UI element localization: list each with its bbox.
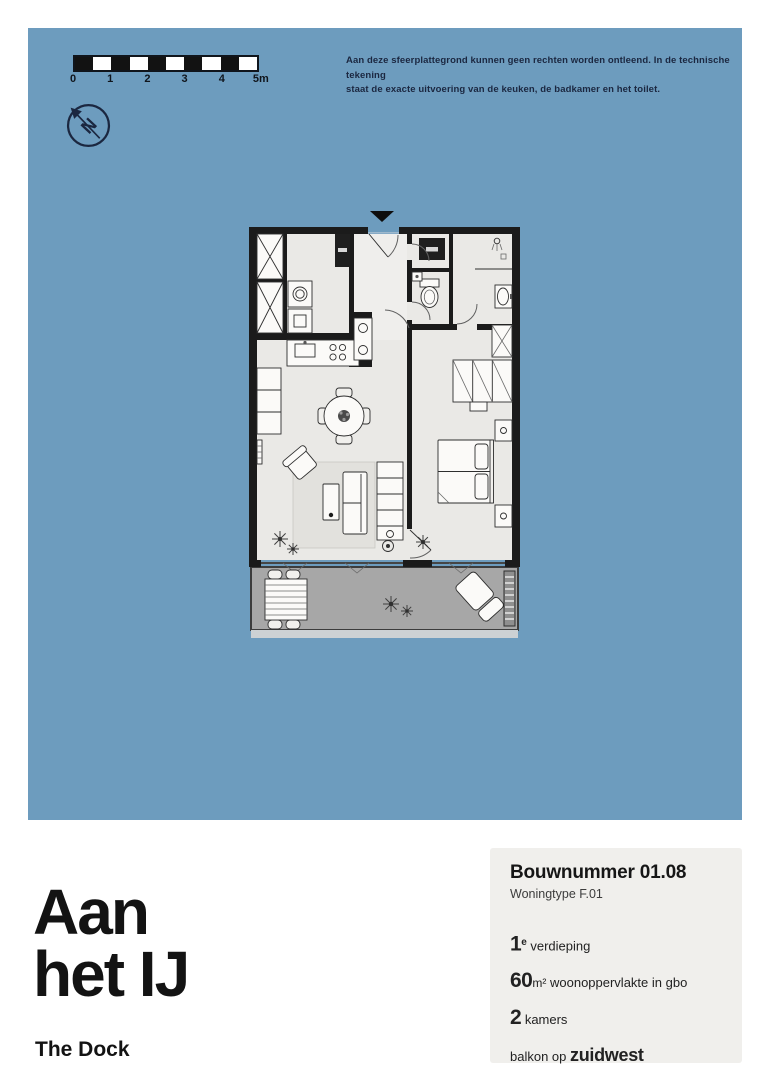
woningtype-label: Woningtype F.01 xyxy=(510,887,722,901)
scale-label: 0 xyxy=(70,73,76,85)
scale-segment xyxy=(93,57,111,70)
privacy-screen xyxy=(504,571,515,626)
coffee-table xyxy=(323,484,339,520)
balcony-row: balkon op zuidwest xyxy=(510,1043,722,1069)
washing-machine-icon xyxy=(288,281,312,307)
bouwnummer-heading: Bouwnummer 01.08 xyxy=(510,862,722,884)
area-number: 60 xyxy=(510,969,532,992)
floor-label: verdieping xyxy=(530,938,590,953)
meter-closets xyxy=(257,234,283,333)
scale-segment xyxy=(111,57,129,70)
scale-label: 5m xyxy=(253,73,269,85)
area-label: woonoppervlakte in gbo xyxy=(550,975,687,990)
disclaimer-line-2: staat de exacte uitvoering van de keuken… xyxy=(346,83,746,98)
scale-label: 4 xyxy=(219,73,225,85)
plant-icon xyxy=(272,531,288,547)
scale-segment xyxy=(166,57,184,70)
floor-row: 1e verdieping xyxy=(510,931,722,958)
north-compass-icon: N xyxy=(65,102,112,149)
rooms-number: 2 xyxy=(510,1006,521,1029)
floor-number: 1 xyxy=(510,932,521,955)
floorplan-drawing xyxy=(249,208,520,639)
rooms-label: kamers xyxy=(525,1012,568,1027)
blue-panel: 0 1 2 3 4 5m N Aan deze sfeerplattegrond… xyxy=(28,28,742,820)
scale-segment xyxy=(130,57,148,70)
scale-segment xyxy=(184,57,202,70)
floorplan-poster: 0 1 2 3 4 5m N Aan deze sfeerplattegrond… xyxy=(0,0,772,1092)
area-unit: m² xyxy=(532,976,546,990)
balcony-prefix: balkon op xyxy=(510,1049,566,1064)
sofa xyxy=(343,472,367,534)
scale-segment xyxy=(221,57,239,70)
kitchen-island xyxy=(354,318,372,360)
closet xyxy=(492,325,512,357)
kitchen-counter xyxy=(287,340,359,366)
project-name: The Dock xyxy=(35,1038,130,1062)
pillow xyxy=(475,444,488,469)
double-bed xyxy=(438,440,494,503)
outdoor-table-set xyxy=(265,570,307,629)
title-line-2: het IJ xyxy=(33,938,188,1010)
nightstand xyxy=(495,420,512,441)
scale-label: 1 xyxy=(107,73,113,85)
washbasin-icon xyxy=(495,285,512,308)
nightstand xyxy=(495,505,512,527)
scale-segment xyxy=(202,57,220,70)
radiator xyxy=(257,440,262,464)
rooms-row: 2 kamers xyxy=(510,1006,722,1032)
area-row: 60m² woonoppervlakte in gbo xyxy=(510,969,722,995)
scale-bar-labels: 0 1 2 3 4 5m xyxy=(73,73,259,86)
info-card: Bouwnummer 01.08 Woningtype F.01 1e verd… xyxy=(490,848,742,1063)
floor-suffix: e xyxy=(521,937,527,948)
poster-title: Aanhet IJ xyxy=(33,881,188,1005)
scale-label: 3 xyxy=(182,73,188,85)
tall-cabinet xyxy=(257,368,281,434)
disclaimer-text: Aan deze sfeerplattegrond kunnen geen re… xyxy=(346,54,746,98)
entrance-arrow-icon xyxy=(370,211,394,222)
scale-segment xyxy=(148,57,166,70)
disclaimer-line-1: Aan deze sfeerplattegrond kunnen geen re… xyxy=(346,54,746,83)
scale-segment xyxy=(239,57,257,70)
plant-icon xyxy=(383,596,399,612)
scale-label: 2 xyxy=(144,73,150,85)
pillow xyxy=(475,474,488,499)
scale-segment xyxy=(75,57,93,70)
dryer-icon xyxy=(288,309,312,333)
scale-bar xyxy=(73,55,259,72)
tv-dresser xyxy=(377,462,403,540)
balcony-direction: zuidwest xyxy=(570,1045,644,1065)
